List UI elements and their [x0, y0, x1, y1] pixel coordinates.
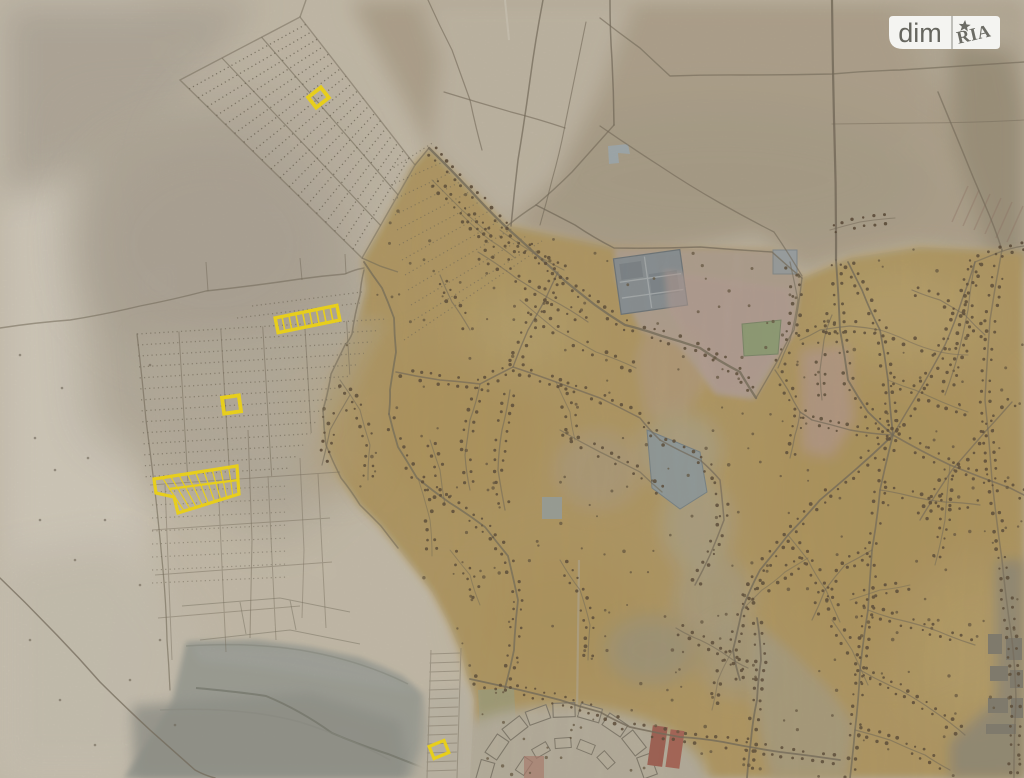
- svg-text:dim: dim: [898, 18, 942, 48]
